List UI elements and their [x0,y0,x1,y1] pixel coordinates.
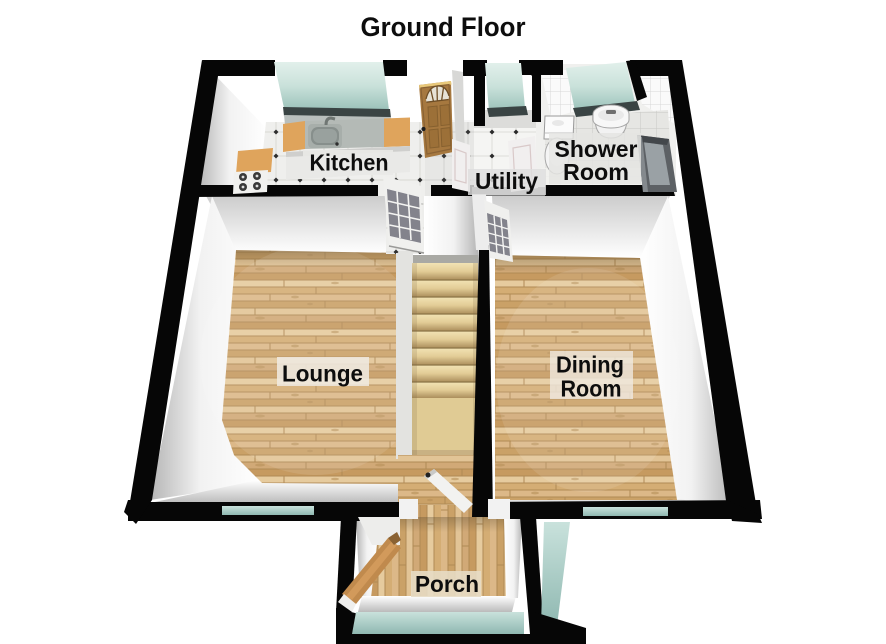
svg-text:Dining: Dining [556,352,624,378]
svg-text:Kitchen: Kitchen [310,150,389,176]
svg-text:Room: Room [563,159,629,185]
svg-text:Lounge: Lounge [282,361,363,387]
svg-text:Room: Room [561,376,622,402]
svg-text:Utility: Utility [475,168,538,194]
svg-text:Porch: Porch [415,571,479,597]
svg-text:Ground Floor: Ground Floor [361,12,526,42]
